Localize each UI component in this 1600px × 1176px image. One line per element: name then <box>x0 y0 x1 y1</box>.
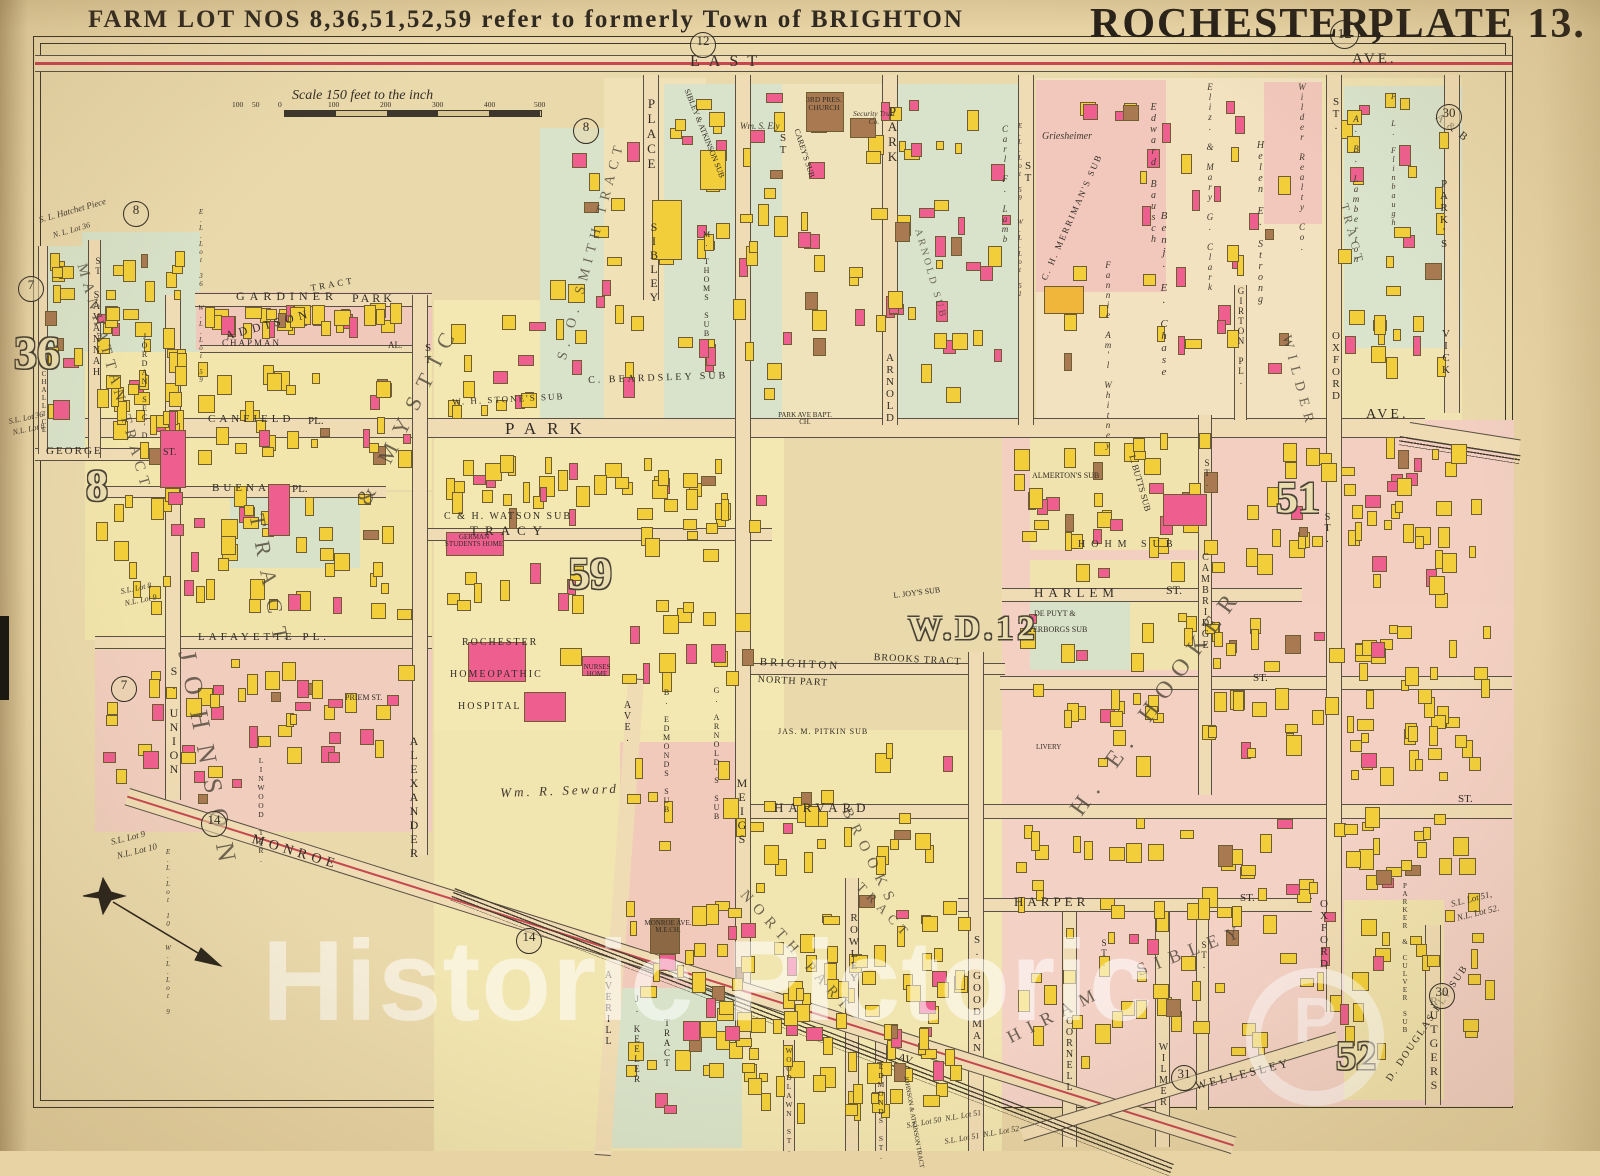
place-label-livery: LIVERY <box>1036 744 1061 751</box>
building <box>1349 310 1365 325</box>
building <box>908 307 916 320</box>
building <box>1283 443 1297 463</box>
street-label-vick: VICK <box>1440 328 1451 376</box>
building <box>175 251 185 266</box>
building <box>1306 448 1321 466</box>
building <box>1286 884 1299 895</box>
place-label-park-ave-baptist: PARK AVE BAPT. CH. <box>776 412 834 427</box>
building <box>1384 520 1392 530</box>
scale-tick: 200 <box>380 100 391 109</box>
building <box>951 237 963 256</box>
street-label-rowley: ROWLEY <box>848 912 859 984</box>
building <box>664 499 679 512</box>
sub-label-depuyt1: DE PUYT & <box>1034 610 1076 618</box>
north-arrow <box>55 840 245 975</box>
sub-label-hohm: HOHM SUB <box>1078 540 1179 551</box>
building <box>1429 726 1438 746</box>
street-label-sibley-place: PLACE <box>645 96 658 171</box>
owner-label-wilder-realty: Wilder Realty Co. <box>1297 82 1306 252</box>
building <box>1400 98 1410 110</box>
building <box>175 366 187 386</box>
building <box>890 839 898 851</box>
building <box>1468 974 1481 985</box>
building <box>1361 919 1378 936</box>
building <box>502 315 516 330</box>
building <box>1149 483 1163 494</box>
building <box>1418 689 1432 704</box>
building <box>699 339 708 358</box>
building <box>630 921 637 937</box>
building <box>1353 1003 1364 1022</box>
building <box>1192 190 1200 211</box>
building <box>145 281 155 302</box>
building <box>1264 661 1280 672</box>
building <box>827 946 838 962</box>
building <box>703 612 716 626</box>
scale-tick: 500 <box>534 100 545 109</box>
building <box>149 679 161 698</box>
building <box>678 337 693 348</box>
building <box>1314 632 1325 641</box>
building <box>721 499 728 521</box>
building <box>271 692 281 702</box>
farm-lot-note: FARM LOT NOS 8,36,51,52,59 refer to form… <box>88 6 964 34</box>
street-label-savannah-st: ST <box>93 256 102 276</box>
sub-label-pitkin: JAS. M. PITKIN SUB <box>778 728 868 736</box>
street-label-buena-pl: PL. <box>292 484 308 496</box>
building <box>1408 726 1419 742</box>
building <box>709 112 725 127</box>
building <box>823 1037 834 1055</box>
building <box>1148 844 1164 861</box>
building <box>320 428 330 437</box>
building <box>1226 643 1235 655</box>
street-label-ave-mid: AVE. <box>1366 408 1408 423</box>
building <box>812 310 827 331</box>
building <box>128 384 139 395</box>
building <box>750 822 764 833</box>
building <box>1084 841 1093 861</box>
building <box>500 455 515 473</box>
building <box>784 1011 798 1026</box>
building <box>967 110 979 132</box>
street-label-ave-top: AVE. <box>1352 52 1397 68</box>
building <box>278 725 292 737</box>
street-label-canfield: CANFIELD <box>208 414 294 426</box>
building <box>1265 229 1275 239</box>
building <box>921 364 932 383</box>
building <box>1365 495 1381 509</box>
building <box>719 1001 733 1015</box>
building <box>1365 807 1380 828</box>
building <box>1403 524 1413 543</box>
building <box>1394 227 1411 237</box>
building <box>776 1076 785 1098</box>
building <box>1413 316 1424 332</box>
building <box>740 214 754 223</box>
building <box>1233 691 1244 712</box>
building <box>1277 819 1293 829</box>
building <box>1235 116 1245 134</box>
building <box>894 830 911 840</box>
building <box>1445 462 1457 477</box>
building <box>1162 123 1171 143</box>
street-label-vick-parks: PARK'S <box>1438 178 1449 250</box>
building <box>934 948 943 962</box>
building <box>1347 716 1354 732</box>
building <box>1429 576 1445 595</box>
building <box>1439 132 1448 149</box>
building <box>1483 626 1490 639</box>
building <box>1469 757 1481 771</box>
building <box>545 457 552 474</box>
building <box>363 530 379 540</box>
building <box>198 450 212 465</box>
building <box>312 373 319 384</box>
building <box>371 603 386 619</box>
street-label-alexander: ALEXANDER <box>408 734 420 860</box>
building <box>703 549 720 562</box>
building <box>682 136 693 145</box>
building <box>804 852 814 873</box>
building <box>457 600 471 611</box>
building <box>530 563 541 584</box>
street-label-harper: HARPER <box>1014 895 1089 909</box>
tract-label-keeler-tract: TRACT <box>662 1018 671 1068</box>
building <box>481 405 488 416</box>
plate-ref-badge-12: 12 <box>690 32 716 58</box>
building <box>615 305 623 324</box>
building <box>659 954 676 970</box>
building <box>891 1025 898 1039</box>
building <box>1257 554 1274 575</box>
place-label-security-trust: Security Trust Co. <box>848 110 900 126</box>
building <box>1393 329 1401 341</box>
building <box>1428 748 1441 759</box>
building <box>853 1084 863 1104</box>
building <box>888 291 903 310</box>
building <box>1382 932 1390 946</box>
scale-tick: 400 <box>484 100 495 109</box>
street-label-harlem: HARLEM <box>1034 586 1119 600</box>
building <box>1016 862 1027 873</box>
building <box>74 348 83 365</box>
building <box>267 373 282 391</box>
building <box>1397 478 1413 496</box>
building <box>1246 548 1258 567</box>
building <box>1018 990 1030 1011</box>
building <box>52 267 62 278</box>
building <box>1131 653 1144 672</box>
building <box>1065 514 1074 532</box>
building <box>1213 658 1221 669</box>
owner-label-whitney: Fannie Am'l Whitney <box>1103 260 1112 450</box>
plate-ref-badge-31: 31 <box>1171 1065 1197 1091</box>
building <box>1376 870 1392 885</box>
building <box>677 965 685 978</box>
building <box>1373 838 1380 855</box>
building <box>1144 458 1161 475</box>
building <box>750 1018 766 1033</box>
place-label-monroe-me-church: MONROE AVE. M.E.CH. <box>644 920 692 935</box>
owner-label-chase: Benj. E. Chase <box>1158 210 1169 378</box>
plate-title-city: ROCHESTER, <box>1090 0 1384 48</box>
street-label-george: GEORGE <box>46 446 103 458</box>
building <box>503 494 511 506</box>
building <box>950 1065 962 1081</box>
building <box>1455 735 1466 748</box>
building <box>1142 623 1154 643</box>
building <box>1111 905 1124 919</box>
block <box>1264 82 1324 224</box>
building <box>958 917 971 931</box>
building <box>728 908 742 918</box>
building <box>334 310 351 327</box>
building <box>152 704 165 722</box>
building <box>741 956 754 973</box>
building <box>1366 690 1374 709</box>
building <box>1014 449 1029 471</box>
building <box>899 813 911 824</box>
sub-label-jordan: JORDAN SEC'D <box>140 332 148 440</box>
building <box>376 309 385 325</box>
street-label-girton: GIRTON PL. <box>1236 286 1245 386</box>
building <box>529 322 546 331</box>
building <box>1432 449 1439 460</box>
plate-ref-badge-30: 30 <box>1436 104 1462 130</box>
building <box>627 142 640 162</box>
sub-label-edmonds-sub: B. EDMONDS SUB <box>662 688 670 814</box>
building <box>1022 531 1036 541</box>
building <box>1110 519 1123 531</box>
street-label-chapman-al: AL. <box>388 341 402 350</box>
tract-label-keeler: J. KEELER <box>632 994 641 1084</box>
building <box>862 971 877 985</box>
building <box>1180 830 1194 840</box>
building <box>334 553 349 571</box>
building <box>644 458 651 471</box>
building <box>1193 1021 1210 1033</box>
building <box>249 599 261 613</box>
building <box>685 950 694 965</box>
building <box>231 659 240 668</box>
building <box>1285 724 1299 733</box>
building <box>1263 915 1277 935</box>
building <box>1442 553 1457 574</box>
building <box>364 305 376 326</box>
building <box>1278 176 1292 195</box>
building <box>1112 1011 1123 1028</box>
building <box>381 583 389 594</box>
building <box>1386 357 1398 378</box>
building <box>160 430 186 488</box>
building <box>363 429 370 448</box>
building <box>656 600 669 612</box>
plate-ref-badge-14b: 14 <box>516 928 542 954</box>
building <box>732 978 742 991</box>
building <box>743 148 751 166</box>
building <box>1044 286 1084 314</box>
building <box>933 1061 944 1081</box>
building <box>645 538 660 557</box>
building <box>717 944 728 957</box>
building <box>1227 245 1239 262</box>
building <box>749 520 761 533</box>
building <box>936 141 944 150</box>
building <box>911 143 921 156</box>
building <box>1073 836 1081 853</box>
building <box>1300 978 1314 987</box>
building <box>797 1103 804 1124</box>
building <box>658 470 669 485</box>
building <box>1163 494 1207 526</box>
scale-caption: Scale 150 feet to the inch <box>292 88 433 104</box>
building <box>97 389 109 407</box>
place-label-german-students-home: GERMAN STUDENTS HOME <box>444 534 504 549</box>
building <box>1247 505 1259 520</box>
building <box>955 143 963 154</box>
building <box>1064 710 1072 729</box>
street-label-park-ave: PARK <box>505 420 593 438</box>
street-label-sibley: SIBLEY <box>648 220 660 304</box>
street-label-oxford-bottom: OXFORD <box>1318 898 1329 970</box>
building <box>1136 818 1145 829</box>
building <box>726 671 739 686</box>
building <box>1231 1047 1246 1056</box>
building <box>1031 973 1042 983</box>
building <box>686 489 697 510</box>
building <box>1076 650 1088 661</box>
building <box>482 490 492 503</box>
building <box>764 388 775 400</box>
building <box>1346 851 1360 869</box>
building <box>320 548 334 561</box>
building <box>247 674 258 695</box>
building <box>1218 845 1233 867</box>
street-label-oxford: OXFORD <box>1330 330 1341 402</box>
building <box>205 307 215 328</box>
owner-label-clark: Eliz. & Mary G. Clark <box>1205 82 1214 292</box>
building <box>1178 336 1186 355</box>
building <box>637 508 653 520</box>
building <box>191 552 199 572</box>
building <box>1226 101 1235 113</box>
building <box>874 945 886 967</box>
scale-tick: 0 <box>278 100 282 109</box>
building <box>647 1060 657 1070</box>
street-label-s-goodman: S. GOODMAN <box>971 934 982 1054</box>
building <box>706 523 718 534</box>
building <box>1425 263 1442 279</box>
place-label-hospital-3: HOSPITAL <box>458 702 522 713</box>
building <box>845 1104 858 1116</box>
farmlot-number-36: 36 <box>14 326 60 379</box>
trolley-line <box>35 62 1512 65</box>
building <box>1355 522 1362 541</box>
building <box>955 970 965 990</box>
building <box>1449 640 1458 658</box>
building <box>171 524 184 536</box>
building <box>1064 448 1077 469</box>
street-label-averill: AVERILL <box>603 970 613 1047</box>
building <box>936 260 943 269</box>
building <box>1171 562 1185 581</box>
building <box>1215 983 1225 993</box>
plate-ref-badge-7b: 7 <box>111 676 137 702</box>
building <box>596 296 604 308</box>
building <box>683 519 697 530</box>
owner-label-lamberton: A. B. Lamberton <box>1351 114 1360 264</box>
building <box>235 443 247 454</box>
building <box>700 1021 717 1039</box>
building <box>773 1019 782 1034</box>
building <box>262 447 274 457</box>
building <box>196 586 204 603</box>
owner-label-flinbaugh: F. L. Flinbaugh <box>1389 92 1397 227</box>
building <box>258 736 271 747</box>
plate-ref-badge-8: 8 <box>573 118 599 144</box>
building <box>550 280 566 300</box>
building <box>1061 644 1075 663</box>
building <box>725 1026 740 1041</box>
building <box>937 982 949 998</box>
building <box>1413 336 1421 357</box>
street-label-buena: BUENA <box>212 483 270 495</box>
building <box>141 254 148 268</box>
building <box>151 498 164 519</box>
building <box>923 1095 940 1107</box>
building <box>305 497 314 516</box>
building <box>1399 145 1411 166</box>
building <box>1377 1043 1386 1060</box>
building <box>806 1027 822 1042</box>
building <box>1436 501 1452 516</box>
building <box>1386 437 1395 458</box>
building <box>1417 842 1427 858</box>
building <box>958 217 965 235</box>
building <box>683 602 694 613</box>
building <box>1348 530 1356 546</box>
building <box>915 833 931 850</box>
building <box>1198 898 1209 920</box>
building <box>238 688 246 702</box>
street-label-gardiner-park: PARK <box>352 292 395 305</box>
building <box>692 972 706 993</box>
building <box>166 272 177 288</box>
building <box>1398 450 1409 469</box>
building <box>53 400 70 420</box>
building <box>1386 286 1401 296</box>
building <box>103 752 116 763</box>
building <box>640 986 657 998</box>
building <box>558 470 569 491</box>
building <box>311 439 318 448</box>
building <box>328 699 343 709</box>
building <box>1371 642 1385 659</box>
building <box>169 411 177 432</box>
east-avenue-road <box>35 55 1512 72</box>
building <box>783 332 792 345</box>
street-label-cornell: CORNELL <box>1064 1016 1074 1093</box>
building <box>1247 748 1256 758</box>
building <box>1367 511 1377 527</box>
building <box>1312 710 1324 726</box>
street-label-averill-ave: AVE. <box>622 700 632 744</box>
street-label-cambridge-st: ST. <box>1202 458 1211 488</box>
building <box>349 317 357 338</box>
building <box>464 355 472 372</box>
street-label-lafayette: LAFAYETTE PL. <box>198 632 330 644</box>
